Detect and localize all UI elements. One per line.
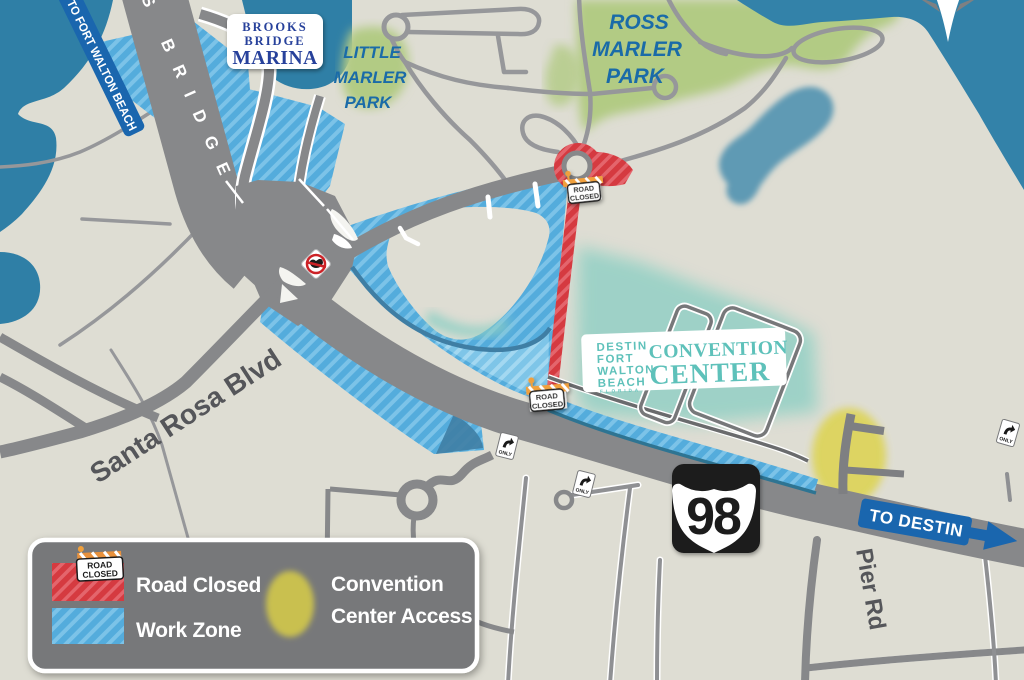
svg-text:PARK: PARK: [345, 93, 394, 112]
svg-text:Convention: Convention: [331, 573, 444, 596]
svg-text:DESTIN: DESTIN: [596, 340, 648, 354]
svg-text:CENTER: CENTER: [649, 355, 771, 390]
svg-text:MARLER: MARLER: [334, 68, 407, 87]
svg-text:Center Access: Center Access: [331, 605, 472, 628]
svg-text:CLOSED: CLOSED: [82, 568, 118, 580]
svg-text:ROSS: ROSS: [609, 11, 669, 34]
svg-text:BROOKS: BROOKS: [242, 20, 308, 34]
svg-text:MARLER: MARLER: [592, 38, 683, 61]
svg-text:Road Closed: Road Closed: [136, 574, 261, 597]
svg-text:MARINA: MARINA: [232, 48, 317, 69]
svg-text:Work Zone: Work Zone: [136, 619, 241, 642]
svg-text:PARK: PARK: [606, 65, 666, 88]
svg-text:98: 98: [686, 488, 741, 546]
svg-text:BRIDGE: BRIDGE: [244, 34, 305, 48]
svg-text:LITTLE: LITTLE: [343, 43, 401, 62]
svg-text:WALTON: WALTON: [597, 364, 655, 378]
